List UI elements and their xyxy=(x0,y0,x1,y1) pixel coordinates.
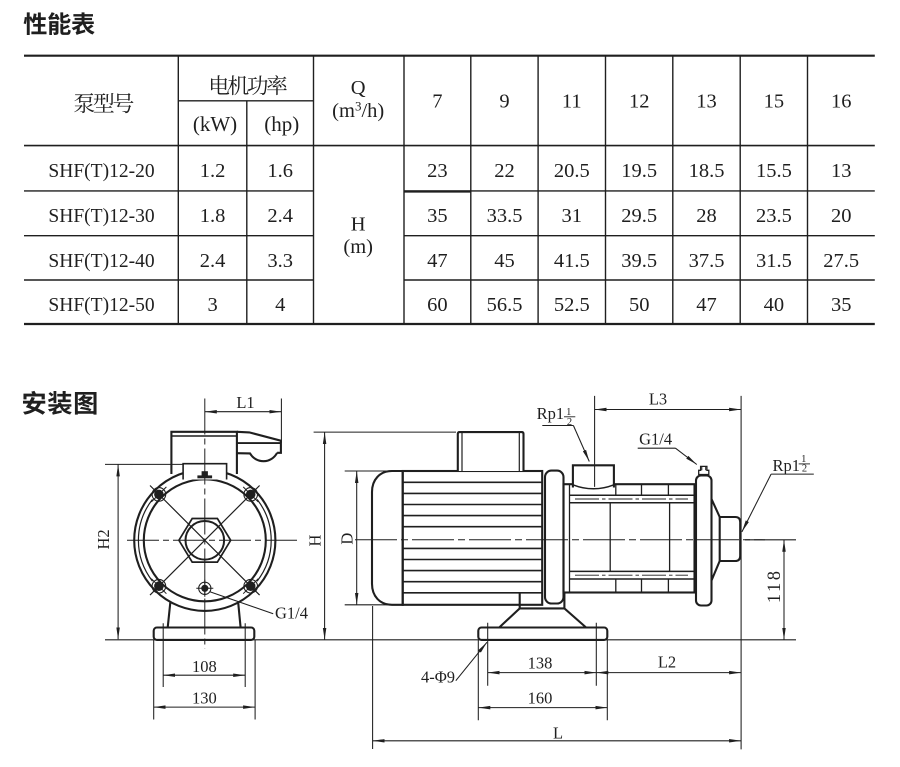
svg-text:SHF(T)12-30: SHF(T)12-30 xyxy=(48,206,154,227)
svg-text:SHF(T)12-40: SHF(T)12-40 xyxy=(48,251,154,272)
svg-text:60: 60 xyxy=(427,294,448,316)
svg-text:23: 23 xyxy=(427,160,448,182)
svg-text:19.5: 19.5 xyxy=(621,160,657,182)
svg-text:31.5: 31.5 xyxy=(756,250,792,272)
svg-text:33.5: 33.5 xyxy=(487,205,523,227)
svg-text:56.5: 56.5 xyxy=(487,294,523,316)
svg-text:12: 12 xyxy=(629,91,650,113)
svg-text:16: 16 xyxy=(831,91,852,113)
svg-text:1.2: 1.2 xyxy=(200,160,226,182)
svg-text:27.5: 27.5 xyxy=(823,250,859,272)
svg-text:15.5: 15.5 xyxy=(756,160,792,182)
svg-text:50: 50 xyxy=(629,294,650,316)
svg-text:3.3: 3.3 xyxy=(267,250,293,272)
svg-text:11: 11 xyxy=(562,91,582,113)
svg-text:7: 7 xyxy=(432,91,442,113)
svg-text:31: 31 xyxy=(562,205,583,227)
svg-text:(hp): (hp) xyxy=(264,112,299,136)
svg-text:Rp1: Rp1 xyxy=(773,456,801,475)
svg-text:2.4: 2.4 xyxy=(267,205,293,227)
svg-text:Rp1: Rp1 xyxy=(537,404,565,423)
svg-text:4: 4 xyxy=(275,294,285,316)
svg-text:35: 35 xyxy=(427,205,448,227)
svg-text:G1/4: G1/4 xyxy=(275,604,308,623)
svg-text:Q: Q xyxy=(351,77,366,99)
svg-text:138: 138 xyxy=(528,654,553,673)
svg-text:2: 2 xyxy=(802,464,807,475)
svg-text:L1: L1 xyxy=(236,393,254,412)
svg-text:(m): (m) xyxy=(343,236,373,258)
svg-text:47: 47 xyxy=(427,250,448,272)
svg-text:13: 13 xyxy=(696,91,717,113)
svg-text:SHF(T)12-20: SHF(T)12-20 xyxy=(48,161,154,182)
svg-text:G1/4: G1/4 xyxy=(639,429,672,448)
svg-text:2.4: 2.4 xyxy=(200,250,226,272)
svg-text:2: 2 xyxy=(567,417,572,428)
svg-text:130: 130 xyxy=(192,689,217,708)
svg-text:H: H xyxy=(306,534,325,546)
svg-text:37.5: 37.5 xyxy=(689,250,725,272)
svg-text:22: 22 xyxy=(494,160,515,182)
svg-text:1.8: 1.8 xyxy=(200,205,226,227)
svg-text:23.5: 23.5 xyxy=(756,205,792,227)
svg-text:H2: H2 xyxy=(94,529,113,549)
svg-text:39.5: 39.5 xyxy=(621,250,657,272)
svg-text:1.6: 1.6 xyxy=(267,160,293,182)
svg-text:29.5: 29.5 xyxy=(621,205,657,227)
svg-text:118: 118 xyxy=(765,569,785,604)
svg-text:13: 13 xyxy=(831,160,852,182)
svg-text:28: 28 xyxy=(696,205,717,227)
svg-text:41.5: 41.5 xyxy=(554,250,590,272)
svg-text:3: 3 xyxy=(207,294,217,316)
svg-text:4-Φ9: 4-Φ9 xyxy=(421,668,455,687)
svg-text:9: 9 xyxy=(499,91,509,113)
svg-text:20: 20 xyxy=(831,205,852,227)
svg-text:H: H xyxy=(351,214,366,236)
svg-text:108: 108 xyxy=(192,657,217,676)
svg-text:SHF(T)12-50: SHF(T)12-50 xyxy=(48,295,154,316)
svg-text:45: 45 xyxy=(494,250,515,272)
svg-text:47: 47 xyxy=(696,294,717,316)
svg-text:35: 35 xyxy=(831,294,852,316)
svg-text:20.5: 20.5 xyxy=(554,160,590,182)
svg-text:18.5: 18.5 xyxy=(689,160,725,182)
svg-text:L: L xyxy=(553,724,563,743)
svg-text:15: 15 xyxy=(764,91,785,113)
svg-text:160: 160 xyxy=(528,689,553,708)
svg-text:40: 40 xyxy=(764,294,785,316)
svg-text:(kW): (kW) xyxy=(193,112,237,136)
svg-text:L3: L3 xyxy=(649,390,667,409)
svg-text:52.5: 52.5 xyxy=(554,294,590,316)
svg-text:D: D xyxy=(337,533,356,545)
svg-text:L2: L2 xyxy=(658,653,676,672)
